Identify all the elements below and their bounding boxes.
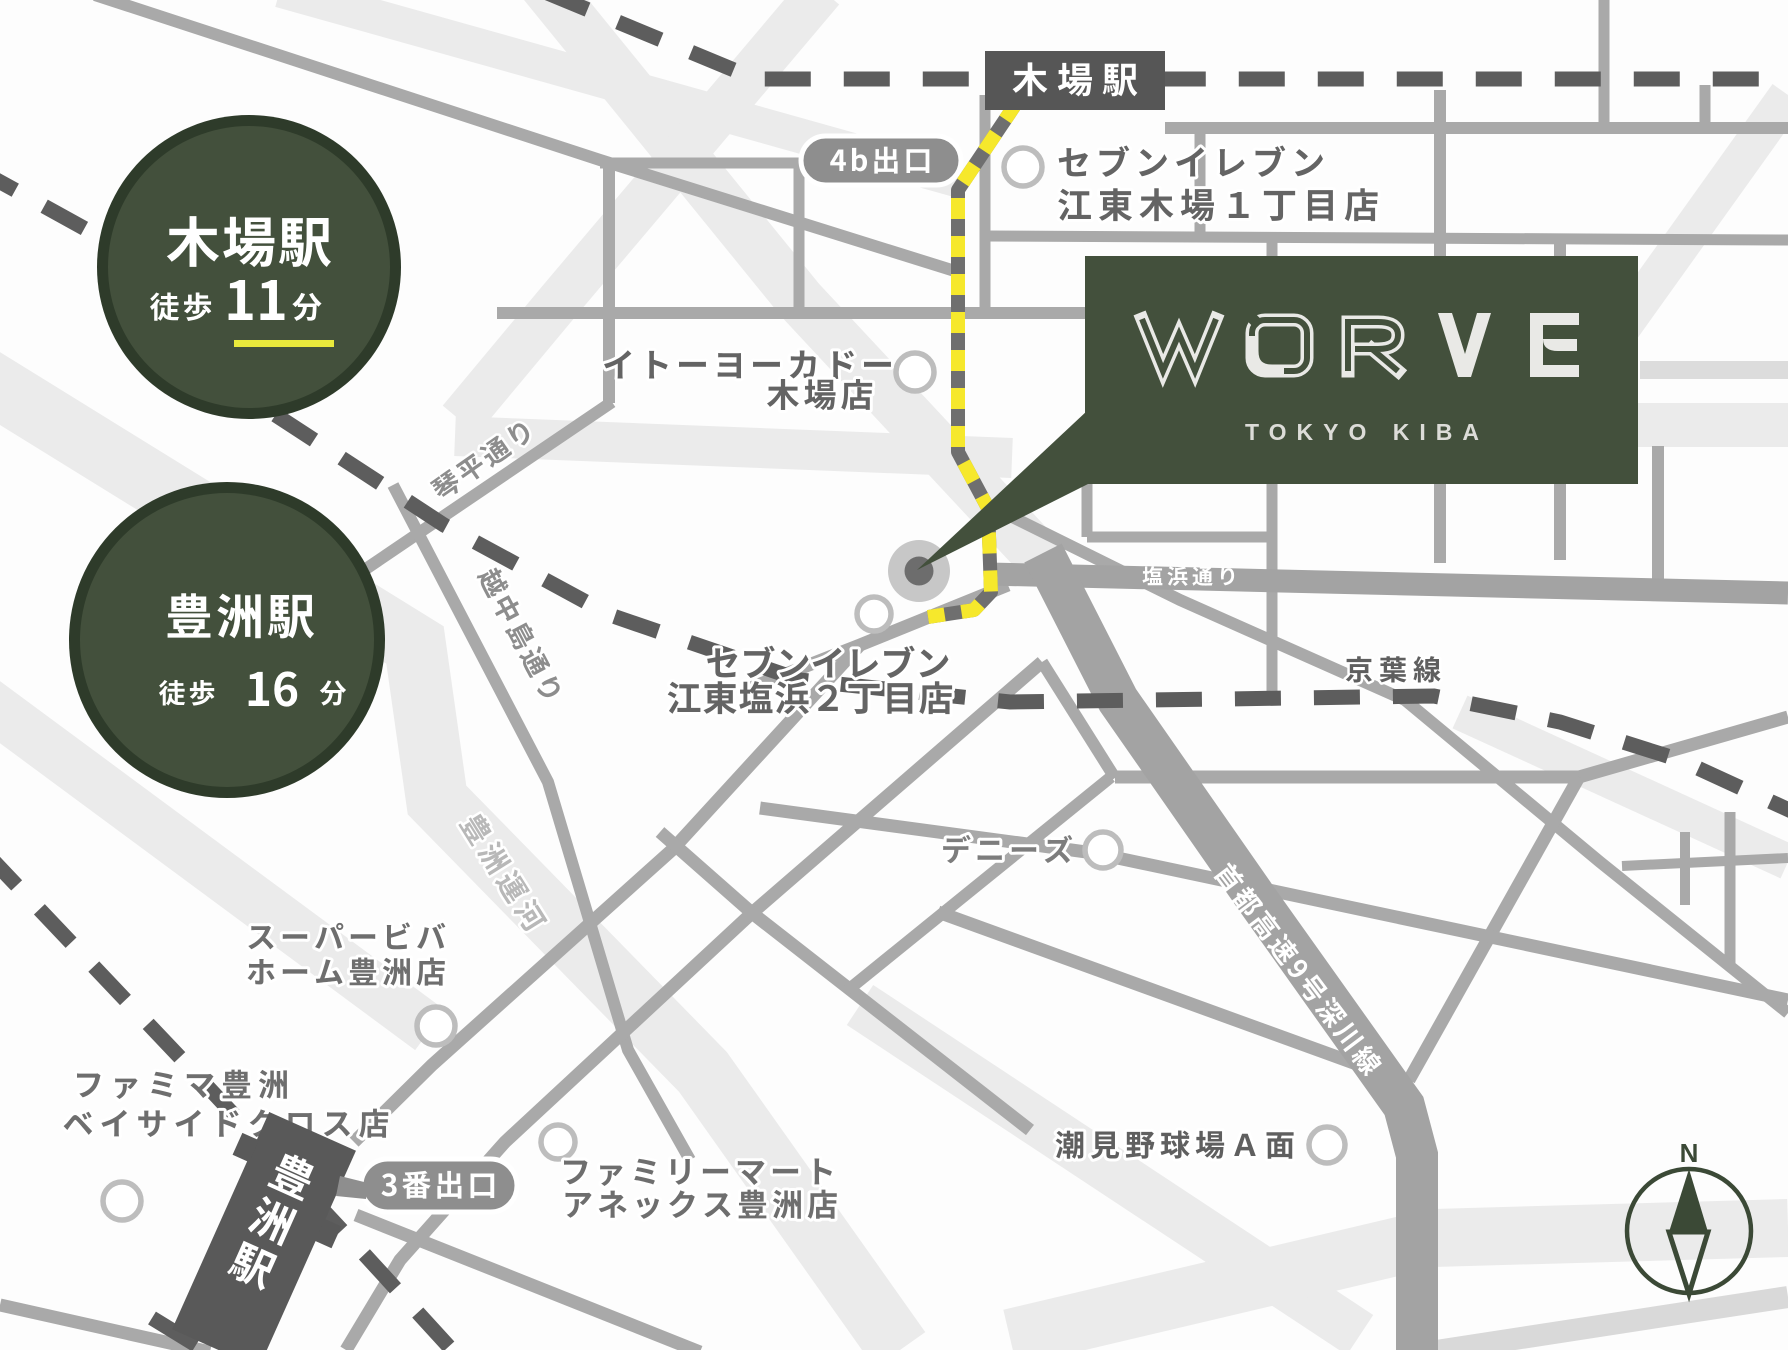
svg-text:N: N — [1680, 1138, 1699, 1168]
svg-text:TOKYO KIBA: TOKYO KIBA — [1245, 419, 1489, 445]
